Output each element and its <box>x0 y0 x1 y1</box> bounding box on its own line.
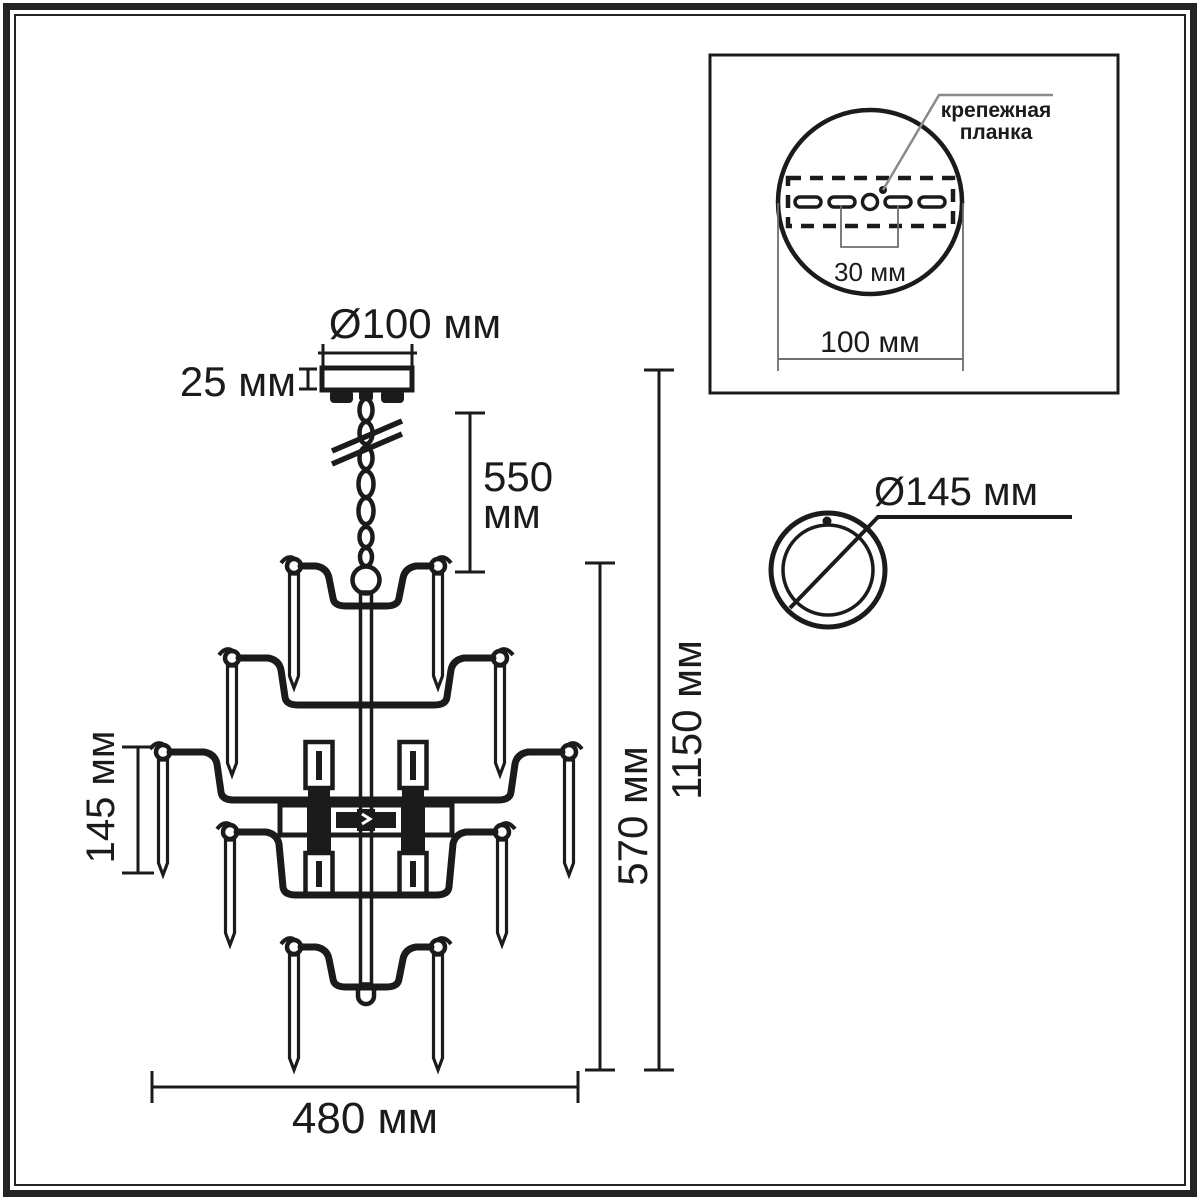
hole-spacing-label: 30 мм <box>834 257 906 287</box>
dimension-drawing: Ø100 мм 25 мм 550 мм 1150 мм 570 мм 145 <box>0 0 1200 1200</box>
ceiling-mount-inset: крепежная планка 30 мм 100 мм <box>710 55 1118 393</box>
center-hub <box>280 800 452 840</box>
chain <box>332 399 402 594</box>
dimension-hole-spacing: 30 мм <box>834 205 906 287</box>
dimension-body-height: 570 мм <box>585 563 656 1070</box>
shade-dot <box>823 517 832 526</box>
dimension-body-width: 480 мм <box>152 1071 578 1143</box>
tier-2 <box>219 649 513 775</box>
body-height-label: 570 мм <box>609 746 656 886</box>
tier-4 <box>217 823 515 945</box>
shade-top-view: Ø145 мм <box>771 470 1072 627</box>
mounting-plate <box>788 178 953 226</box>
dimension-chain-length: 550 мм <box>455 413 553 572</box>
dimension-canopy-diameter: Ø100 мм <box>318 300 501 366</box>
center-stem <box>361 592 372 984</box>
diagram-page: Ø100 мм 25 мм 550 мм 1150 мм 570 мм 145 <box>0 0 1200 1200</box>
body-width-label: 480 мм <box>292 1094 438 1143</box>
upper-candles <box>306 742 427 802</box>
chain-length-label-line2: мм <box>483 490 541 537</box>
dimension-canopy-height: 25 мм <box>180 358 317 405</box>
canopy-diameter-label: Ø100 мм <box>329 300 501 347</box>
shade-diameter-label: Ø145 мм <box>874 470 1038 514</box>
pendant-height-label: 145 мм <box>79 731 123 864</box>
tier-1 <box>281 557 451 688</box>
shade-leader-line <box>790 517 1072 608</box>
dimension-total-height: 1150 мм <box>644 370 710 1070</box>
total-height-label: 1150 мм <box>663 640 710 800</box>
mounting-plate-label-line1: крепежная <box>941 99 1052 122</box>
dimension-pendant-height: 145 мм <box>79 731 154 873</box>
plate-diameter-label: 100 мм <box>820 326 920 359</box>
lower-candles <box>306 838 427 895</box>
canopy-height-label: 25 мм <box>180 358 296 405</box>
mounting-plate-label-line2: планка <box>960 121 1033 144</box>
